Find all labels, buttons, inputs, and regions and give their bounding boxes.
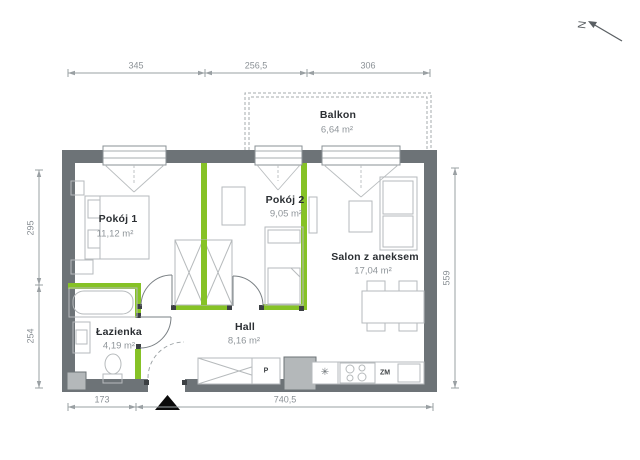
north-label: N: [575, 20, 588, 29]
dim-left-2: 254: [27, 328, 36, 343]
dim-bottom-2: 740,5: [274, 396, 297, 405]
room-area-hall: 8,16 m²: [228, 336, 260, 346]
toilet: [103, 354, 122, 383]
balcony-outline: [245, 93, 431, 150]
dim-top-2: 256,5: [245, 62, 268, 71]
room-label-salon: Salon z aneksem: [331, 252, 419, 263]
washing-machine-label: P: [264, 368, 269, 375]
door-pokoj1: [141, 275, 172, 306]
shaft: [284, 357, 316, 390]
room-area-lazienka: 4,19 m²: [103, 341, 135, 351]
window-pokoj2: [255, 146, 302, 190]
dining-table: [362, 281, 424, 331]
bathtub: [69, 288, 137, 317]
room-label-hall: Hall: [235, 322, 255, 333]
wardrobe-double: [175, 240, 232, 305]
room-label-pokoj1: Pokój 1: [99, 214, 138, 225]
door-entrance: [148, 342, 184, 410]
shaft-bathroom: [67, 372, 86, 390]
room-area-salon: 17,04 m²: [354, 266, 392, 276]
dim-top-1: 345: [128, 62, 143, 71]
washbasin: [73, 322, 90, 353]
room-label-pokoj2: Pokój 2: [266, 195, 305, 206]
window-balcony-door: [322, 146, 400, 197]
floor-plan: N Pokój 1 11,12 m² Pokój 2 9,05 m² Salon…: [0, 0, 640, 460]
dim-bottom-1: 173: [94, 396, 109, 405]
door-pokoj2: [233, 276, 263, 306]
window-pokoj1: [103, 146, 166, 192]
room-area-pokoj2: 9,05 m²: [270, 209, 302, 219]
room-label-lazienka: Łazienka: [96, 327, 142, 338]
room-area-pokoj1: 11,12 m²: [97, 229, 134, 239]
dim-left-1: 295: [27, 220, 36, 235]
north-arrow: N: [575, 20, 622, 41]
dim-right-1: 559: [443, 270, 452, 285]
room-area-balkon: 6,64 m²: [321, 125, 353, 135]
entrance-marker: [155, 395, 180, 410]
room-label-balkon: Balkon: [320, 110, 356, 121]
door-bathroom: [140, 317, 171, 348]
fridge-symbol: ✳: [321, 368, 329, 378]
coffee-table: [349, 201, 372, 232]
sofa: [380, 177, 417, 250]
dishwasher-label: ZM: [380, 370, 390, 377]
dim-top-3: 306: [360, 62, 375, 71]
